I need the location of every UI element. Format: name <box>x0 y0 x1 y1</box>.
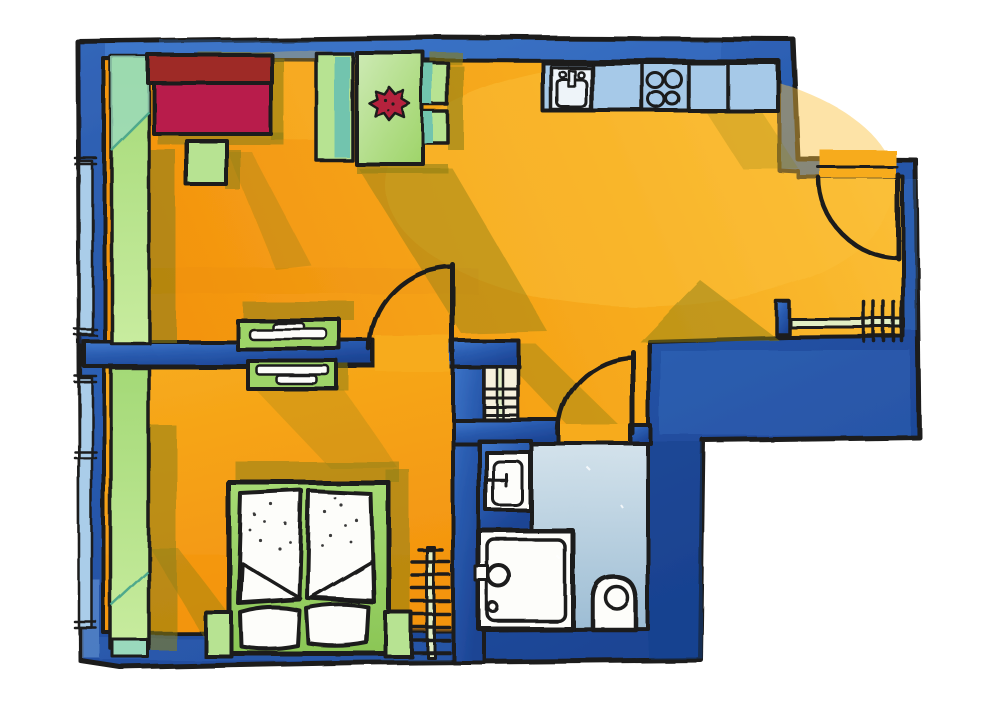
kitchen-sink <box>551 67 591 110</box>
double-bed <box>205 462 411 656</box>
left-wall-windows <box>75 158 96 628</box>
dining-chair-1 <box>424 63 448 105</box>
sideboard-living-room <box>237 302 355 349</box>
dining-chair-2 <box>424 112 448 143</box>
bed-leg-right <box>385 612 411 656</box>
pillow-left <box>240 607 299 648</box>
bathroom-sink-area <box>479 441 531 531</box>
dining-bench <box>316 53 352 160</box>
bed-leg-left <box>205 612 231 656</box>
sofa-back <box>148 55 272 83</box>
bedroom-radiator <box>412 547 449 657</box>
wall-niche-top-arm <box>453 341 519 367</box>
floor-plan-stage <box>0 0 1000 703</box>
flower-decoration <box>369 87 410 120</box>
window-upper <box>79 161 92 334</box>
shower <box>476 531 573 629</box>
shower-head <box>490 567 511 588</box>
sideboard-bedroom <box>248 361 349 391</box>
window-lower <box>79 378 92 628</box>
floor-plan-canvas <box>0 0 1000 703</box>
pillow-right <box>306 604 368 645</box>
kitchen-counter <box>543 63 778 111</box>
toilet <box>593 577 636 630</box>
wall-corridor-stub <box>776 301 789 334</box>
sofa-seat <box>154 83 271 134</box>
sofa <box>148 52 284 145</box>
